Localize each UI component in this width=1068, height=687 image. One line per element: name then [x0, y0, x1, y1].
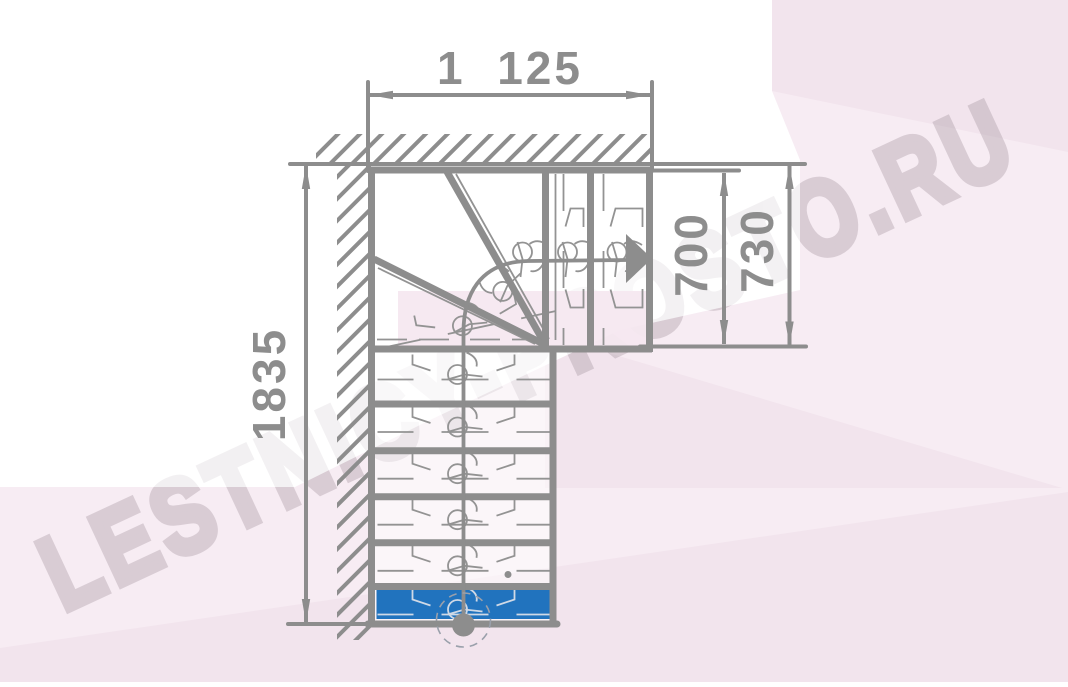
svg-text:700: 700	[665, 211, 717, 297]
svg-text:730: 730	[731, 207, 783, 293]
svg-text:1 125: 1 125	[437, 42, 583, 94]
svg-text:1835: 1835	[243, 327, 295, 441]
